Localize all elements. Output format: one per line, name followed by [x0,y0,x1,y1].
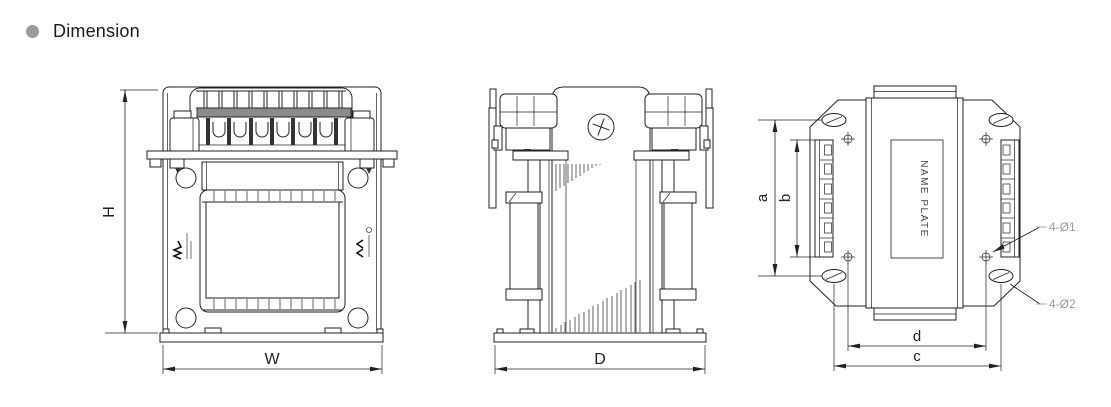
side-view: D [489,87,713,374]
mounting-hole [348,168,368,188]
coil-face-left [506,192,542,300]
dimension-W: W [163,345,382,374]
dim-label-d: d [913,328,921,345]
phillips-screw-icon [588,114,614,140]
dim-label-D: D [594,351,606,368]
front-view: H W [101,87,397,374]
bobbin-band [202,162,343,190]
transformer-dimension-drawing: H W [0,0,1111,407]
callout-hole-1-label: 4-Ø1 [1049,220,1076,234]
front-flange [147,151,397,159]
coil-window [200,190,345,312]
top-view: NAME PLATE a b d [754,86,1076,371]
dimension-D: D [495,345,705,374]
terminal-wing-right [345,111,374,155]
coil-face-right [660,192,696,300]
dimension-b: b [777,140,815,257]
terminal-wing-left [170,111,199,155]
dim-label-H: H [101,206,118,218]
mounting-hole [176,168,196,188]
dim-label-W: W [264,351,280,368]
mounting-hole [176,308,196,328]
dim-label-a: a [754,193,771,202]
terminal-bar [197,108,351,117]
dimension-H: H [101,90,158,333]
name-plate-text: NAME PLATE [918,160,929,238]
mounting-hole [348,308,368,328]
terminal-strip-left-edge [815,140,833,257]
dim-label-c: c [913,348,921,365]
name-plate [891,140,943,258]
terminal-strip [197,117,351,151]
callout-hole-2-label: 4-Ø2 [1049,297,1076,311]
dimension-page: Dimension [0,0,1111,407]
dim-label-b: b [777,194,794,202]
callout-hole-2: 4-Ø2 [1010,284,1076,311]
lamination-band-top [874,86,956,98]
